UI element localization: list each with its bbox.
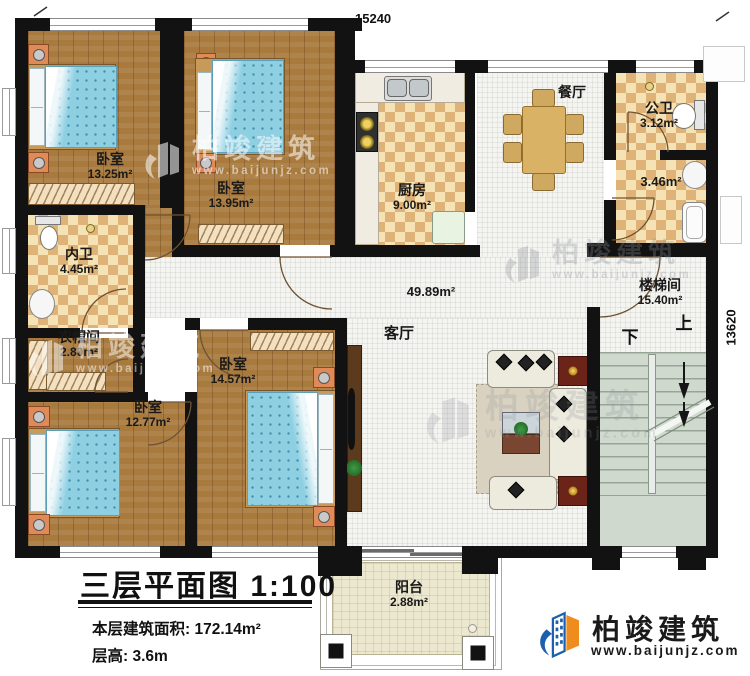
stair-break-line [646, 398, 714, 441]
room-name: 公卫 [640, 101, 678, 117]
room-name: 卧室 [211, 357, 256, 373]
room-label-bedroom-bm: 卧室 14.57m² [211, 357, 256, 386]
plan-title: 三层平面图 1:100 [80, 561, 337, 605]
room-name: 内卫 [60, 247, 98, 263]
company-logo-icon [534, 606, 588, 660]
room-label-kitchen: 厨房 9.00m² [393, 183, 431, 212]
title-underline-thin [78, 607, 312, 608]
door-arcs [82, 112, 668, 445]
floor-area-stat: 本层建筑面积: 172.14m² [92, 617, 261, 639]
floor-plan-page: 15240 13620 卧室 13.25m² 卧室 13.95m² 厨房 9.0… [0, 0, 750, 676]
living-area-value: 49.89m² [407, 285, 455, 300]
room-label-balcony: 阳台 2.88m² [390, 580, 428, 609]
room-label-stairwell: 楼梯间 15.40m² [638, 278, 683, 307]
room-label-living: 客厅 [384, 326, 414, 343]
room-label-bedroom-bl: 卧室 12.77m² [126, 400, 171, 429]
company-website: www.baijunjz.com [591, 643, 740, 658]
room-name: 厨房 [393, 183, 431, 199]
company-name: 柏竣建筑 [592, 608, 724, 648]
room-area: 3.46m² [640, 175, 681, 190]
room-name: 客厅 [384, 326, 414, 343]
room-name: 楼梯间 [638, 278, 683, 294]
room-area: 13.25m² [88, 168, 133, 181]
room-area: 2.80m² [58, 346, 100, 359]
room-area: 15.40m² [638, 294, 683, 307]
room-area: 2.88m² [390, 596, 428, 609]
room-area: 4.45m² [60, 263, 98, 276]
room-name: 卧室 [88, 152, 133, 168]
room-label-bedroom-tm: 卧室 13.95m² [209, 181, 254, 210]
room-label-bedroom-tl: 卧室 13.25m² [88, 152, 133, 181]
room-area: 9.00m² [393, 199, 431, 212]
room-name: 卧室 [209, 181, 254, 197]
room-name: 卧室 [126, 400, 171, 416]
room-name: 阳台 [390, 580, 428, 596]
stair-down-label: 下 [622, 323, 639, 348]
title-underline [78, 600, 312, 604]
room-label-bath-lower: 3.46m² [640, 175, 681, 190]
room-label-dining: 餐厅 [558, 85, 586, 101]
dimension-top: 15240 [355, 11, 391, 26]
room-area: 3.12m² [640, 117, 678, 130]
dimension-right: 13620 [724, 297, 739, 359]
floor-height-value: 3.6m [132, 648, 167, 665]
room-area: 12.77m² [126, 416, 171, 429]
stair-direction-arrows [680, 362, 688, 424]
floor-height-label: 层高: [92, 648, 128, 665]
floor-area-label: 本层建筑面积: [92, 621, 190, 638]
room-area: 14.57m² [211, 373, 256, 386]
room-area: 49.89m² [407, 285, 455, 300]
room-area: 13.95m² [209, 197, 254, 210]
room-label-ensuite-bath: 内卫 4.45m² [60, 247, 98, 276]
floor-area-value: 172.14m² [194, 621, 260, 638]
room-name: 衣帽间 [58, 330, 100, 346]
room-label-public-bath: 公卫 3.12m² [640, 101, 678, 130]
room-name: 餐厅 [558, 85, 586, 101]
stair-up-label: 上 [676, 309, 693, 334]
room-label-cloakroom: 衣帽间 2.80m² [58, 330, 100, 359]
floor-height-stat: 层高: 3.6m [92, 644, 168, 666]
